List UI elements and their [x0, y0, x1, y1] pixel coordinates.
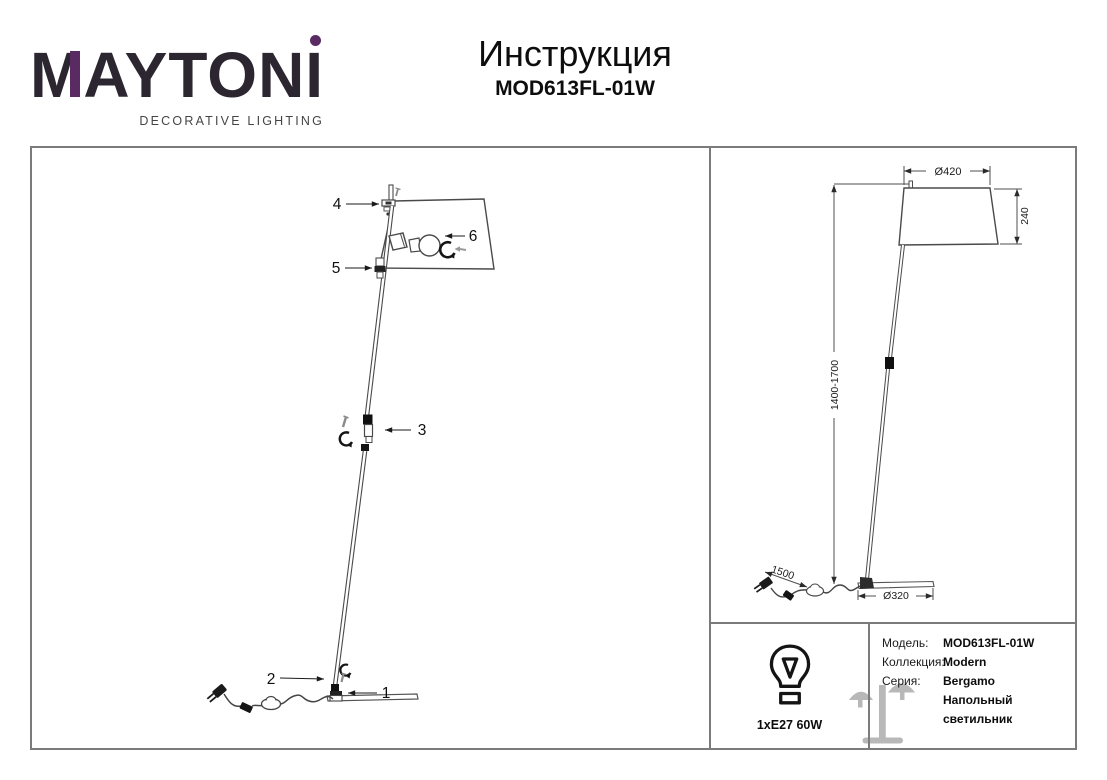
spec-label-collection: Коллекция: — [882, 653, 943, 672]
cord-strain-piece — [782, 590, 794, 601]
bulb-icon — [764, 643, 816, 709]
logo-letter-i: I — [305, 40, 324, 110]
assembly-diagram: 4 5 6 3 2 1 — [32, 148, 709, 748]
base-plate — [858, 577, 934, 589]
dim-shade-height — [994, 189, 1022, 244]
dim-text-height-range: 1400-1700 — [829, 360, 841, 410]
spec-row-type: Напольный светильник — [882, 691, 1075, 729]
dim-label-height-range: 1400-1700 — [826, 352, 841, 418]
finial — [389, 185, 401, 200]
pole-lower — [867, 369, 888, 579]
screw-icon — [343, 417, 346, 427]
foot-switch — [262, 697, 281, 710]
logo-purple-bar — [70, 51, 80, 97]
part-label-4: 4 — [333, 196, 379, 213]
plug-icon — [206, 683, 228, 703]
dim-text-cord-length: 1500 — [770, 563, 796, 582]
spec-label-type-empty — [882, 691, 943, 729]
screw-icon — [396, 189, 398, 196]
dim-text-shade-height: 240 — [1019, 207, 1031, 225]
shade-outline — [899, 181, 998, 245]
lamp-socket — [389, 233, 407, 250]
cord-strain-piece — [239, 702, 253, 713]
rotate-arrow-icon-bottom — [340, 665, 350, 682]
spec-value-series: Bergamo — [943, 672, 1075, 691]
model-number: MOD613FL-01W — [430, 77, 720, 101]
page-title: Инструкция — [430, 34, 720, 74]
logo-tagline: DECORATIVE LIGHTING — [30, 114, 324, 128]
spec-value-model: MOD613FL-01W — [943, 634, 1075, 653]
spec-label-series: Серия: — [882, 672, 943, 691]
svg-text:4: 4 — [333, 196, 342, 213]
spec-row-model: Модель: MOD613FL-01W — [882, 634, 1075, 653]
spec-panel: 1xE27 60W Модель: MOD613FL-01W Коллекция… — [709, 622, 1077, 750]
foot-switch — [807, 584, 824, 596]
dim-text-base-diameter: Ø320 — [883, 590, 909, 602]
spec-value-collection: Modern — [943, 653, 1075, 672]
part-label-3: 3 — [385, 422, 426, 439]
svg-text:6: 6 — [469, 228, 478, 245]
spec-info-cell: Модель: MOD613FL-01W Коллекция: Modern С… — [870, 624, 1075, 748]
dimensions-panel: Ø420 1400-1700 240 — [709, 146, 1077, 624]
pole-upper — [890, 245, 903, 358]
spec-cell-divider — [868, 624, 870, 748]
spec-row-series: Серия: Bergamo — [882, 672, 1075, 691]
dim-label-shade-height: 240 — [1019, 207, 1031, 225]
spec-value-lamp-type: Напольный светильник — [943, 691, 1075, 729]
spec-label-model: Модель: — [882, 634, 943, 653]
logo-letters: AYTON — [83, 39, 305, 111]
spec-row-collection: Коллекция: Modern — [882, 653, 1075, 672]
svg-text:5: 5 — [332, 260, 341, 277]
assembly-panel: 4 5 6 3 2 1 — [30, 146, 711, 750]
rotate-arrow-icon-mid — [340, 416, 352, 445]
pole-lower — [335, 451, 365, 686]
bulb-spec-cell: 1xE27 60W — [711, 624, 868, 748]
dimension-diagram: Ø420 1400-1700 240 — [711, 148, 1075, 622]
svg-text:1: 1 — [382, 685, 391, 702]
logo-letter-i-stem: I — [305, 39, 324, 111]
part-label-5: 5 — [332, 260, 372, 277]
plug-icon — [753, 576, 773, 593]
instruction-sheet: MAYTONI DECORATIVE LIGHTING Инструкция M… — [0, 0, 1107, 780]
maytoni-logo: MAYTONI DECORATIVE LIGHTING — [30, 40, 324, 128]
dim-text-shade-diameter: Ø420 — [935, 166, 962, 178]
bulb-spec-label: 1xE27 60W — [711, 718, 868, 732]
pole-connector — [885, 357, 894, 369]
title-block: Инструкция MOD613FL-01W — [430, 34, 720, 101]
svg-text:3: 3 — [418, 422, 427, 439]
logo-wordmark: MAYTONI — [30, 40, 324, 110]
pole-connector — [361, 415, 373, 452]
pole-upper — [367, 206, 392, 415]
part-label-2: 2 — [267, 671, 324, 688]
svg-text:2: 2 — [267, 671, 276, 688]
